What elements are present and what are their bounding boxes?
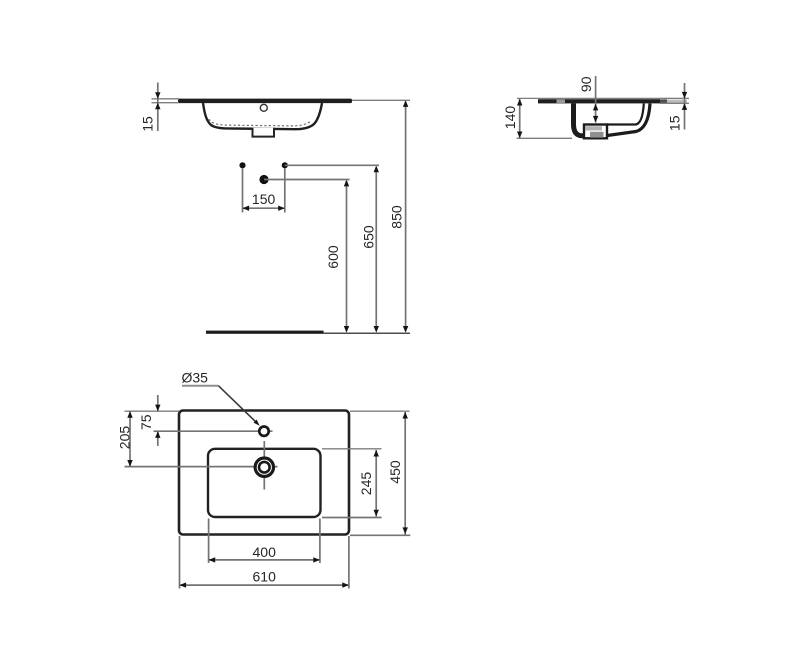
svg-text:650: 650 (361, 225, 377, 249)
svg-text:850: 850 (389, 205, 405, 229)
svg-text:140: 140 (502, 106, 518, 130)
svg-text:90: 90 (578, 76, 594, 92)
svg-text:400: 400 (253, 544, 277, 560)
svg-text:Ø35: Ø35 (182, 369, 209, 385)
svg-text:75: 75 (138, 414, 154, 430)
svg-text:205: 205 (117, 426, 133, 450)
svg-text:610: 610 (253, 568, 277, 584)
svg-text:15: 15 (667, 115, 683, 131)
svg-text:15: 15 (140, 116, 156, 132)
svg-text:450: 450 (387, 460, 403, 484)
svg-text:600: 600 (325, 245, 341, 269)
svg-text:150: 150 (252, 191, 276, 207)
svg-text:245: 245 (358, 472, 374, 496)
